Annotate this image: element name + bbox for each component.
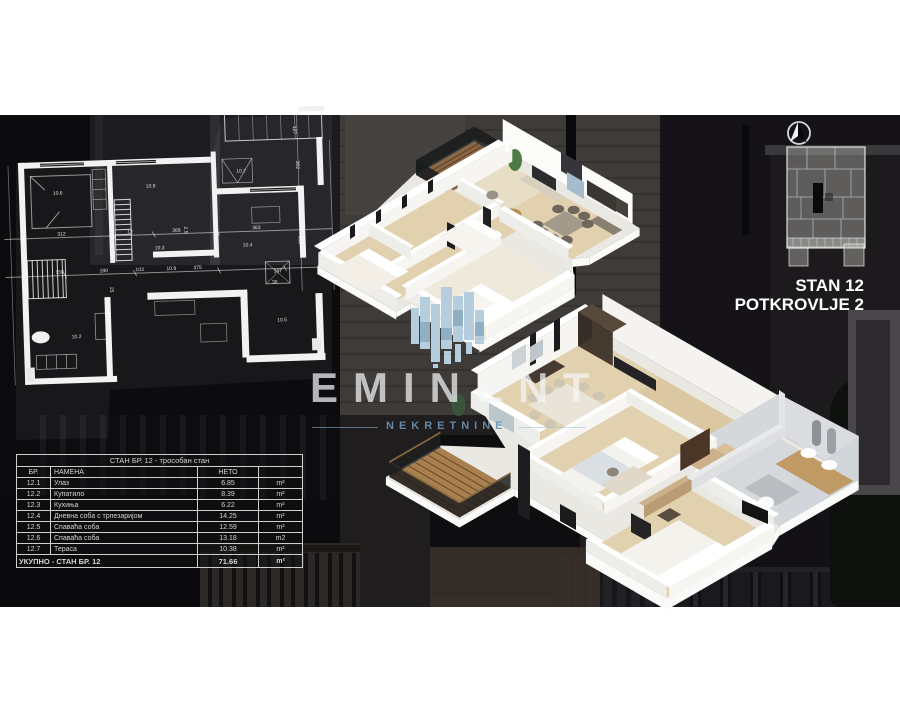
svg-text:103: 103	[135, 267, 144, 273]
svg-text:10.7: 10.7	[236, 168, 246, 174]
svg-text:25: 25	[108, 287, 114, 293]
svg-text:10.3: 10.3	[155, 245, 165, 251]
svg-text:368: 368	[172, 228, 181, 234]
svg-text:10.5: 10.5	[277, 317, 287, 323]
svg-text:10.9: 10.9	[146, 183, 156, 189]
svg-text:36: 36	[272, 279, 278, 285]
svg-text:10.4: 10.4	[243, 242, 253, 248]
svg-text:363: 363	[252, 225, 261, 231]
svg-text:10.2: 10.2	[72, 334, 82, 340]
svg-text:127: 127	[291, 126, 297, 135]
svg-text:190: 190	[99, 268, 108, 274]
svg-text:150: 150	[55, 270, 64, 276]
svg-text:302: 302	[294, 161, 300, 170]
svg-text:305: 305	[296, 236, 302, 245]
svg-text:10.6: 10.6	[53, 191, 63, 197]
svg-text:375: 375	[193, 265, 202, 271]
svg-text:2.5: 2.5	[182, 226, 188, 233]
svg-text:12: 12	[127, 229, 133, 235]
svg-text:10.9: 10.9	[166, 266, 176, 272]
svg-text:312: 312	[57, 231, 66, 237]
